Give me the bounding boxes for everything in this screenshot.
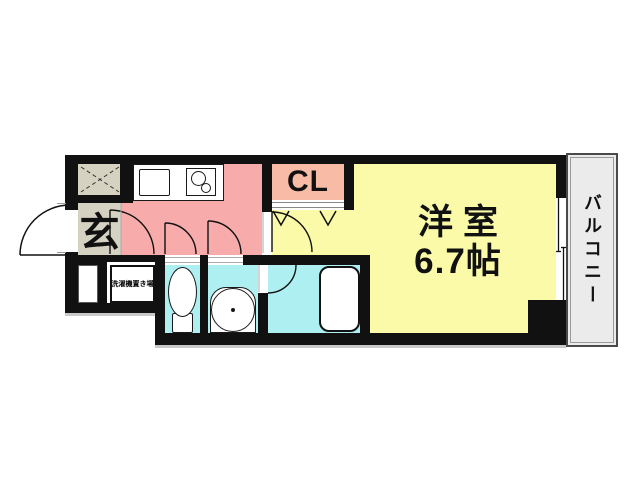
wall xyxy=(155,255,165,333)
balcony-area: バルコニー xyxy=(566,153,618,347)
wall xyxy=(360,255,370,333)
stove-burner-icon xyxy=(201,183,211,193)
wall xyxy=(98,265,107,303)
kitchen-sink xyxy=(139,169,170,196)
wall xyxy=(258,293,268,333)
closet-door-track xyxy=(272,200,344,210)
wall xyxy=(262,164,272,212)
wall-shadow xyxy=(65,313,160,316)
wall xyxy=(65,155,78,210)
floorplan-canvas: バルコニー 洗濯機置き場 玄 CL 洋室 6.7帖 xyxy=(0,0,640,480)
laundry-space-label: 洗濯機置き場 xyxy=(112,279,154,289)
toilet-bowl xyxy=(168,267,197,317)
wall-shadow xyxy=(155,345,566,348)
wall xyxy=(65,303,160,313)
wall xyxy=(200,255,208,265)
western-room-size: 6.7帖 xyxy=(414,242,502,281)
western-room-area xyxy=(272,210,354,255)
wall xyxy=(243,255,370,265)
opening-tick xyxy=(57,204,66,253)
bathtub xyxy=(319,266,360,332)
washbasin-drain xyxy=(231,308,235,312)
sliding-window xyxy=(556,198,566,300)
pillar xyxy=(528,300,566,345)
wall xyxy=(344,164,354,210)
western-room-label: 洋室 6.7帖 xyxy=(370,192,546,292)
laundry-space-inner: 洗濯機置き場 xyxy=(110,265,155,303)
entrance-label: 玄 xyxy=(78,204,121,254)
wall xyxy=(65,155,566,164)
balcony-label: バルコニー xyxy=(579,193,605,308)
western-room-name: 洋室 xyxy=(408,203,508,242)
laundry-space-box: 洗濯機置き場 xyxy=(107,262,155,303)
closet-label: CL xyxy=(272,164,344,200)
storage-nook xyxy=(78,265,98,303)
bathroom-door-opening xyxy=(258,265,268,293)
entrance-door-arc xyxy=(20,205,70,255)
wall xyxy=(556,164,566,198)
wall xyxy=(155,333,566,345)
shoe-storage-area xyxy=(78,164,122,195)
balcony-floor: バルコニー xyxy=(570,157,614,343)
wall xyxy=(200,265,208,333)
